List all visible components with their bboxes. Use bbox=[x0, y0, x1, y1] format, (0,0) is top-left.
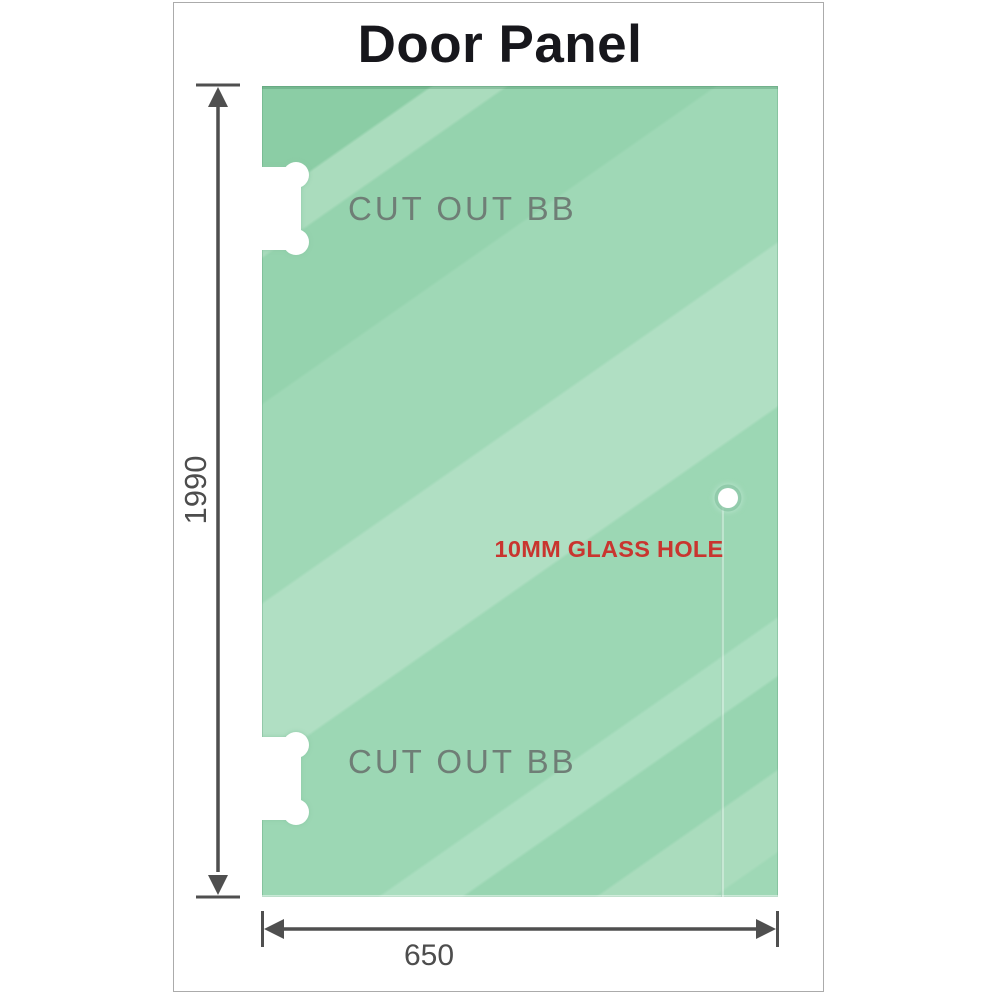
hinge-cutout-bottom-icon bbox=[262, 726, 322, 836]
height-dimension-value: 1990 bbox=[178, 430, 212, 550]
glass-reflection-line bbox=[721, 506, 724, 897]
glass-hole-label: 10MM GLASS HOLE bbox=[469, 536, 749, 563]
door-panel-drawing: Door Panel CUT OUT BB CUT OUT BB 10MM GL… bbox=[0, 0, 1000, 1000]
width-dimension-value: 650 bbox=[369, 939, 489, 973]
width-dimension-arrow-icon bbox=[255, 905, 790, 960]
page-title: Door Panel bbox=[173, 14, 827, 75]
cutout-top-label: CUT OUT BB bbox=[348, 191, 708, 227]
glass-hole-icon bbox=[718, 488, 738, 508]
cutout-bottom-label: CUT OUT BB bbox=[348, 744, 708, 780]
glass-panel: CUT OUT BB CUT OUT BB 10MM GLASS HOLE bbox=[262, 86, 778, 897]
hinge-cutout-top-icon bbox=[262, 156, 322, 266]
